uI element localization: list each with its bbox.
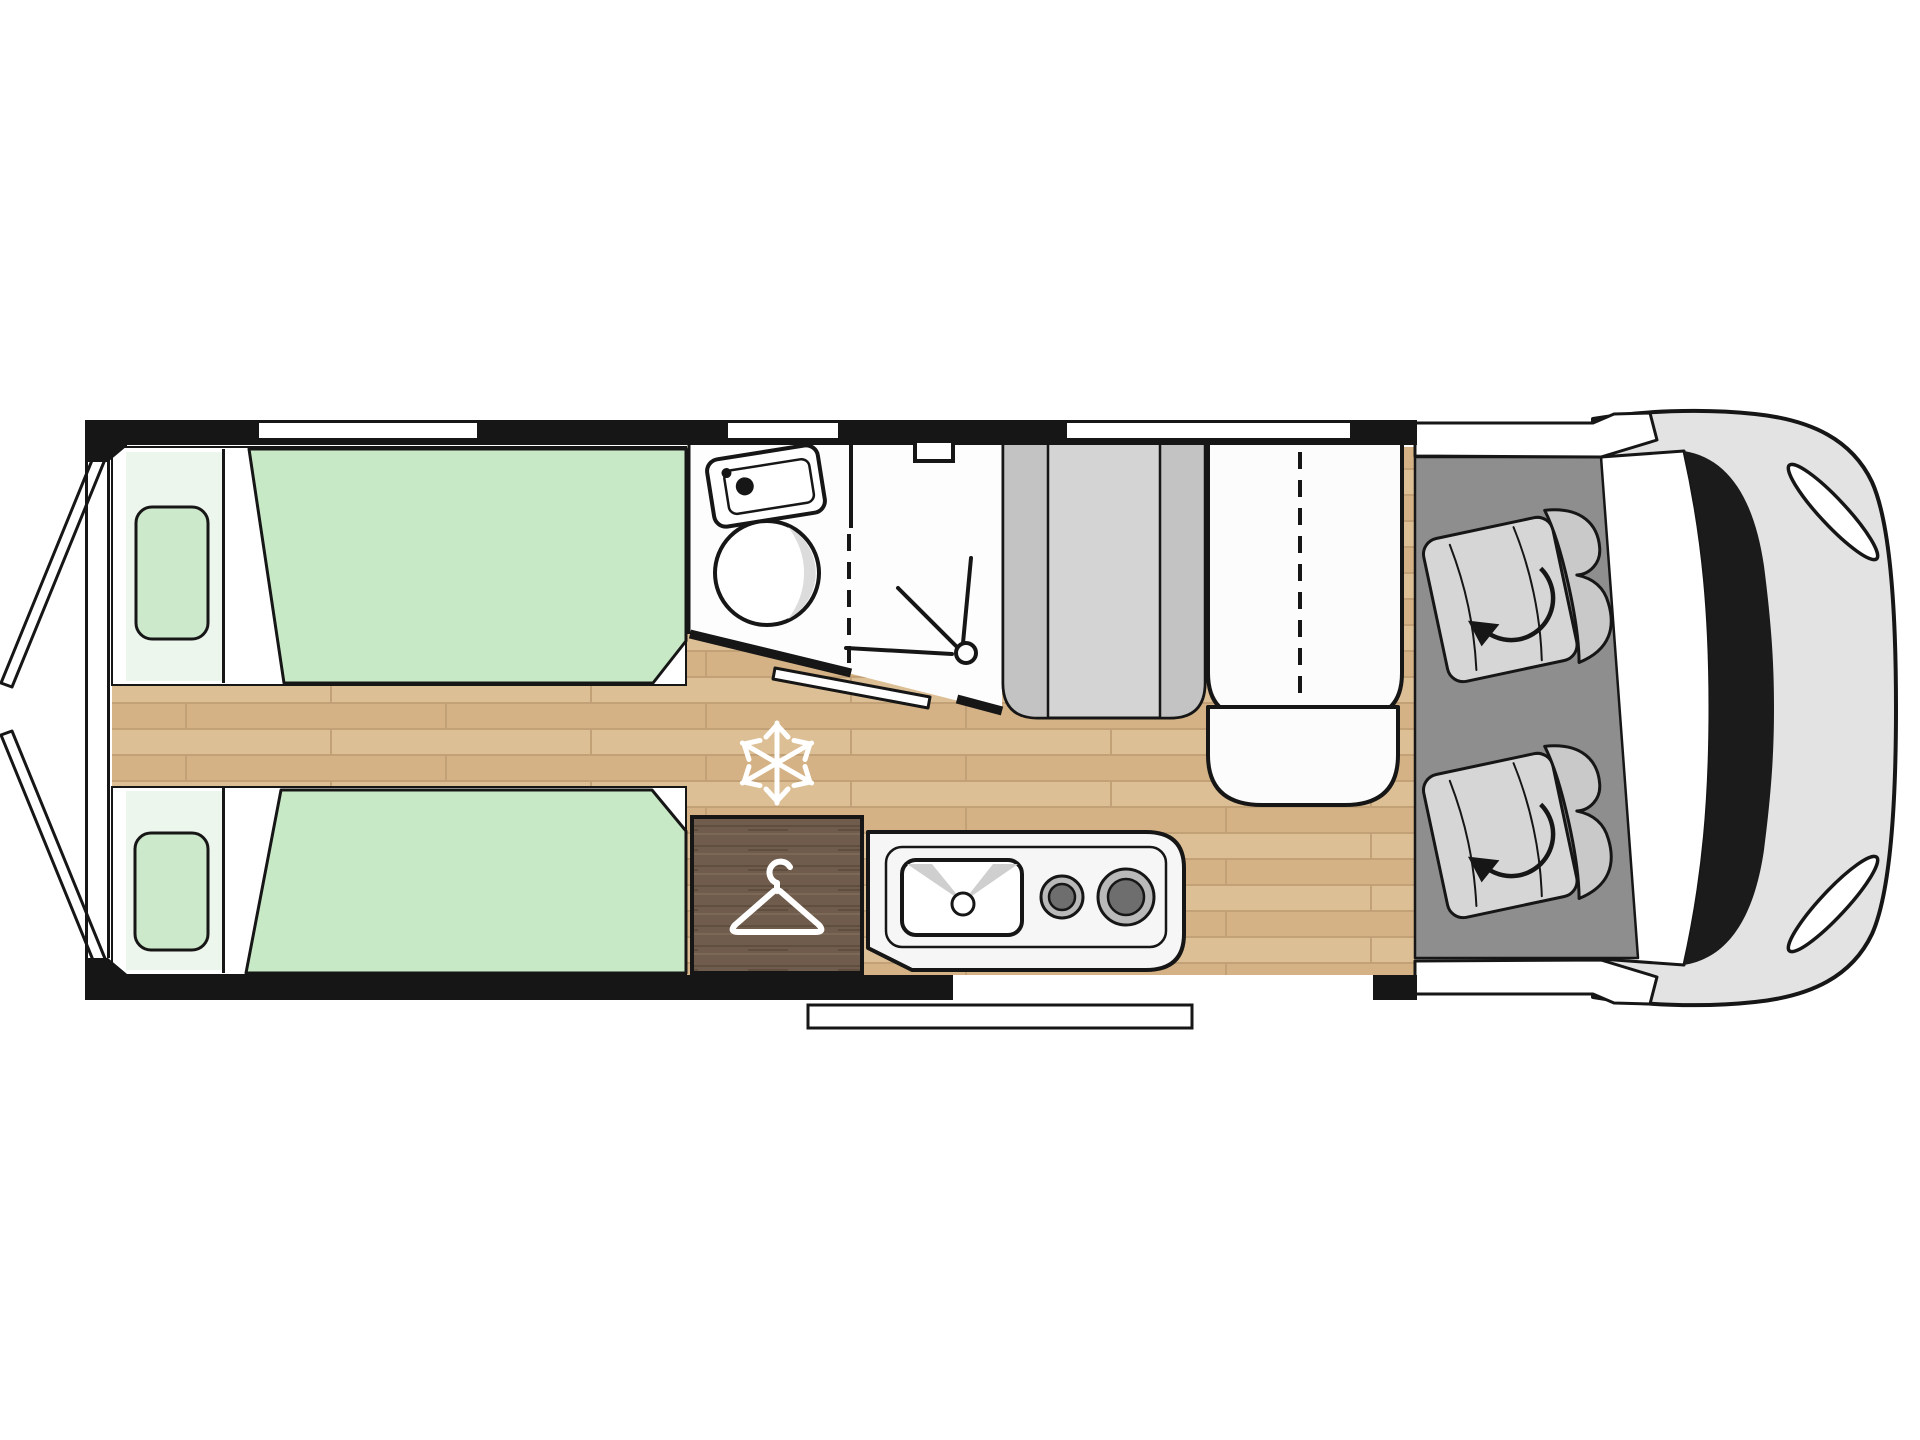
gray-bench-right-section	[1160, 438, 1205, 718]
bed-upper-divider	[222, 449, 225, 683]
entry-step	[808, 1005, 1192, 1028]
cab-side-band-top	[1415, 413, 1657, 457]
white-bench-base	[1208, 707, 1398, 805]
wardrobe-cabinet	[692, 817, 862, 973]
wardrobe	[692, 817, 862, 973]
kitchen-sink-drain	[952, 893, 974, 915]
shower-vent	[915, 441, 953, 461]
bed-upper	[112, 447, 686, 685]
cab-side-band-bottom	[1415, 960, 1657, 1004]
rear-door-upper	[1, 453, 106, 687]
bed-lower-pillow	[135, 833, 208, 950]
window-bathroom	[728, 423, 838, 438]
window-bedroom	[259, 423, 477, 438]
bottom-wall-left	[85, 975, 953, 1000]
rear-doors	[1, 453, 106, 965]
window-dinette	[1067, 423, 1350, 438]
bed-lower-mattress	[246, 790, 686, 973]
rear-edge-inner	[107, 460, 110, 958]
gray-bench-left-section	[1003, 438, 1048, 718]
bed-lower-divider	[222, 788, 225, 973]
bottom-wall-right	[1373, 975, 1417, 1000]
rear-door-lower	[1, 731, 106, 965]
rear-edge-outer	[85, 458, 88, 958]
floorplan-canvas	[0, 0, 1920, 1440]
floorplan-svg	[0, 0, 1920, 1440]
vanity-sink	[705, 444, 826, 529]
vehicle-front	[1593, 411, 1896, 1005]
burner-small-core	[1049, 884, 1075, 910]
bed-lower	[112, 787, 686, 975]
cab	[1415, 457, 1638, 958]
white-bench	[1208, 438, 1402, 718]
burner-large-core	[1108, 879, 1144, 915]
kitchen	[868, 832, 1184, 970]
round-basin	[715, 521, 819, 625]
bed-upper-mattress	[249, 449, 686, 683]
bed-upper-pillow	[136, 507, 208, 639]
